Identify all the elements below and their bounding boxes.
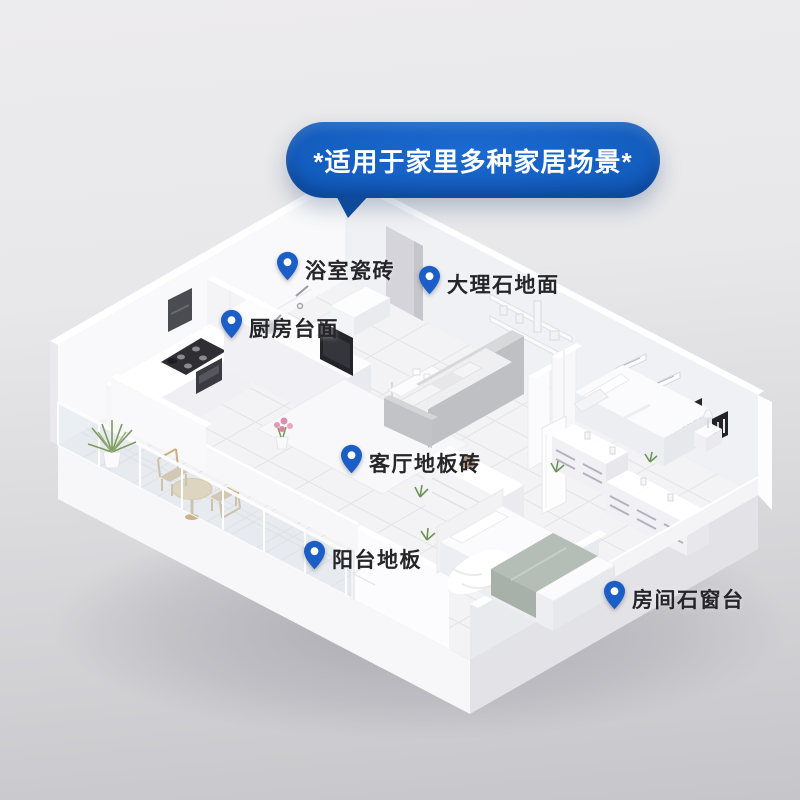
map-pin-kitchen-countertop: 厨房台面 bbox=[221, 309, 339, 343]
pin-label: 房间石窗台 bbox=[632, 584, 745, 614]
promo-banner: *适用于家里多种家居场景* bbox=[286, 122, 660, 198]
map-pin-balcony-floor: 阳台地板 bbox=[304, 540, 422, 574]
pin-label: 阳台地板 bbox=[332, 544, 422, 574]
pin-label: 大理石地面 bbox=[447, 269, 560, 299]
map-pin-living-room-floor-tiles: 客厅地板砖 bbox=[341, 444, 482, 478]
location-pin-icon bbox=[604, 580, 625, 610]
pin-label: 浴室瓷砖 bbox=[305, 255, 395, 285]
product-image: *适用于家里多种家居场景* 浴室瓷砖 大理石地面 厨房台面 bbox=[0, 0, 800, 800]
location-pin-icon bbox=[341, 444, 362, 474]
map-pin-bathroom-tiles: 浴室瓷砖 bbox=[277, 251, 395, 285]
location-pin-icon bbox=[419, 265, 440, 295]
pin-label: 客厅地板砖 bbox=[369, 448, 482, 478]
location-pin-icon bbox=[304, 540, 325, 570]
location-pin-icon bbox=[277, 251, 298, 281]
map-pin-marble-floor: 大理石地面 bbox=[419, 265, 560, 299]
pin-label: 厨房台面 bbox=[249, 313, 339, 343]
location-pin-icon bbox=[221, 309, 242, 339]
apartment-model-illustration bbox=[0, 0, 800, 800]
map-pin-room-stone-windowsill: 房间石窗台 bbox=[604, 580, 745, 614]
promo-banner-text: *适用于家里多种家居场景* bbox=[313, 142, 632, 179]
